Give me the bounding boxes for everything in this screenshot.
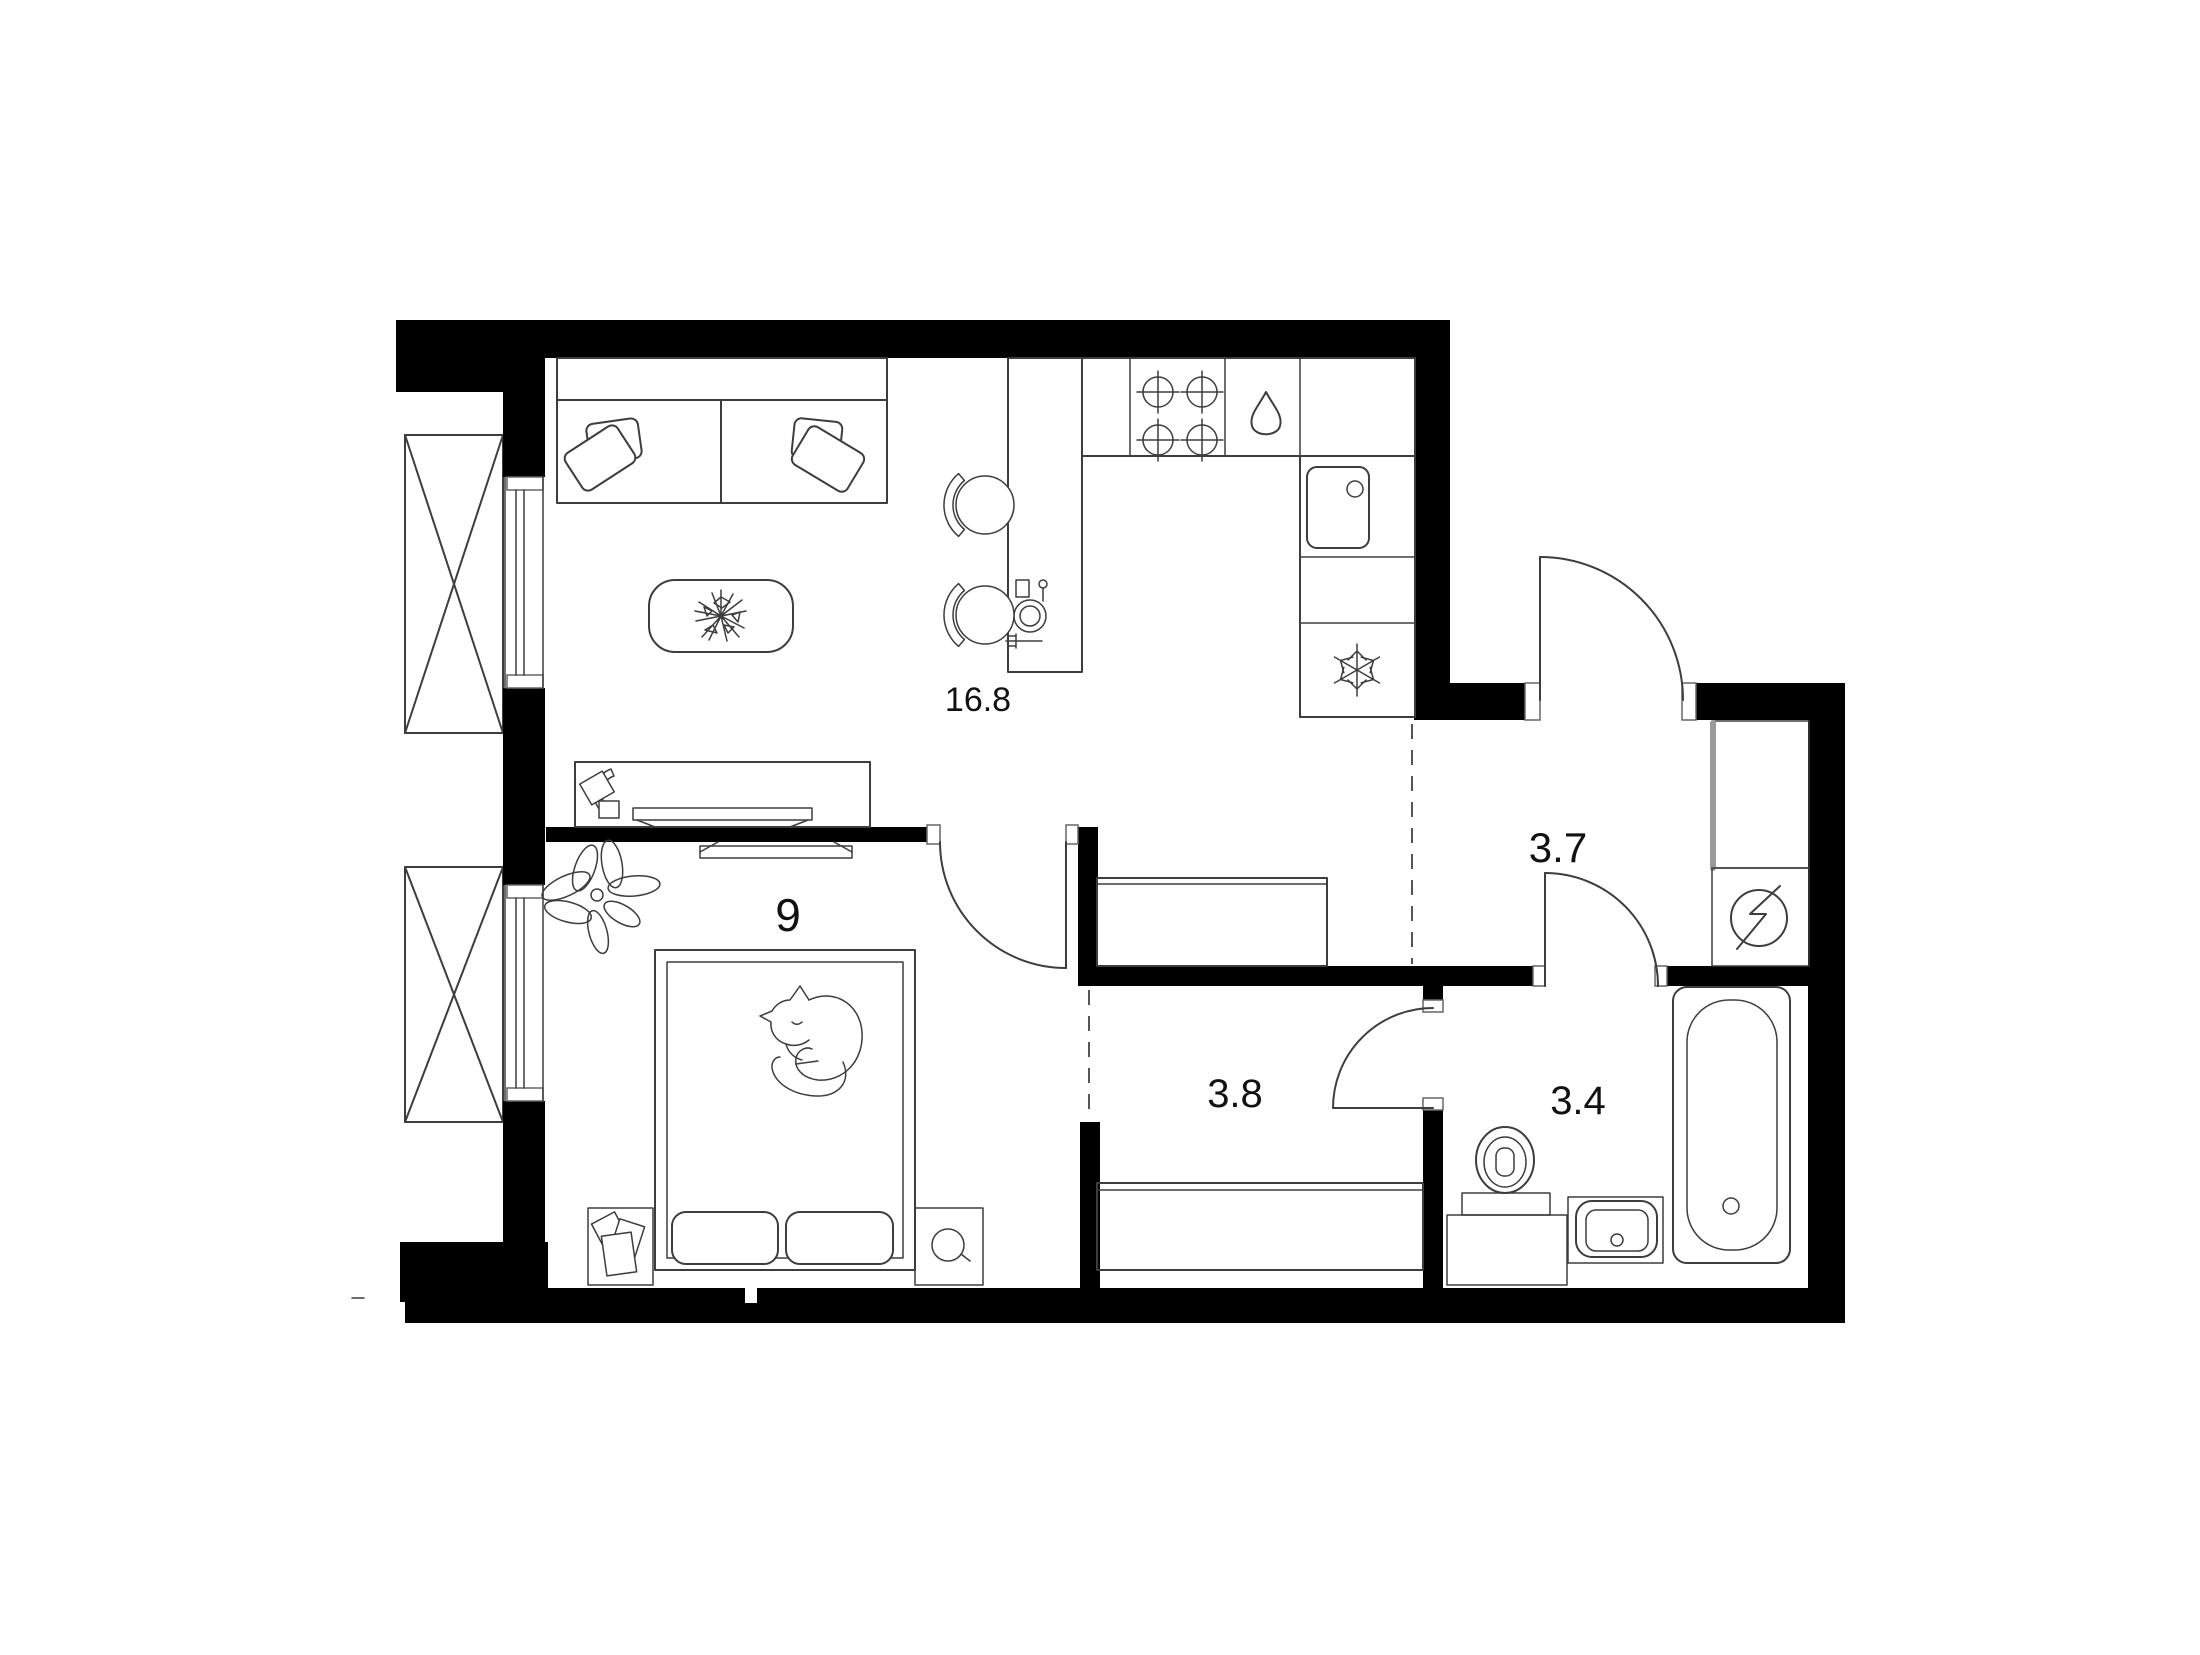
corridor-bathroom-door [1333, 1008, 1433, 1108]
fridge-snowflake-icon [1330, 644, 1384, 696]
washbasin [1568, 1197, 1663, 1263]
kitchen-counter-top [1082, 358, 1415, 456]
sofa [557, 358, 887, 503]
bathtub [1673, 987, 1790, 1263]
bathroom-hall-door [1545, 873, 1658, 986]
coffee-table [649, 580, 793, 652]
window-living [505, 477, 543, 688]
room-label-bedroom: 9 [775, 889, 801, 941]
toilet [1462, 1127, 1550, 1215]
window-bedroom [505, 885, 543, 1101]
balcony-lower [405, 867, 503, 1122]
room-label-living-kitchen: 16.8 [945, 681, 1011, 719]
plant-icon [538, 839, 661, 956]
stove-burners-icon [1137, 371, 1223, 461]
nightstand-right [915, 1208, 983, 1285]
desk-chair [580, 769, 619, 818]
nightstand-left [588, 1208, 653, 1285]
desk [575, 762, 870, 827]
bed [655, 950, 915, 1270]
room-label-hall: 3.7 [1529, 824, 1587, 871]
flower-icon [695, 590, 746, 641]
floorplan-svg: 16.8 9 3.7 3.8 3.4 [0, 0, 2200, 1650]
door-jambs [927, 683, 1696, 1110]
bathroom-cabinet [1447, 1215, 1567, 1285]
room-label-corridor: 3.8 [1207, 1072, 1263, 1116]
cat-icon [760, 986, 862, 1096]
dining-table [1006, 358, 1082, 672]
wardrobe-upper [1097, 878, 1327, 966]
floorplan-page: 16.8 9 3.7 3.8 3.4 [0, 0, 2200, 1650]
wardrobe-lower [1097, 1183, 1423, 1270]
tv [700, 842, 852, 858]
hall-closet [1713, 721, 1809, 868]
bedroom-door [940, 842, 1066, 968]
entrance-door [1540, 557, 1683, 700]
kitchen-sink [1307, 467, 1369, 548]
water-drop-icon [1251, 392, 1280, 434]
dining-chair-2 [944, 584, 1014, 647]
balcony-upper [405, 435, 503, 733]
dining-chair-1 [944, 474, 1014, 537]
room-label-bathroom: 3.4 [1550, 1079, 1606, 1123]
electric-panel-icon [1712, 868, 1809, 966]
